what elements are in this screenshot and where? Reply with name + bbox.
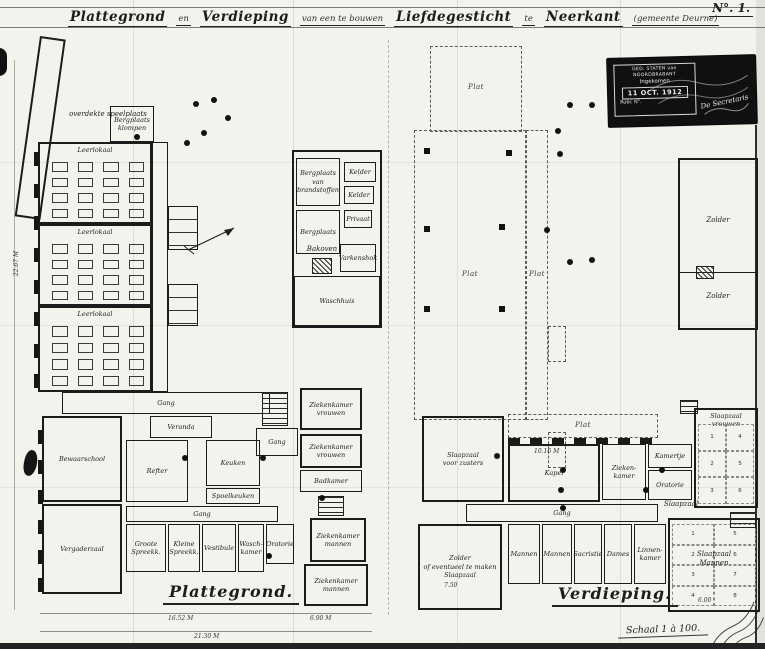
dimension-label: 10.16 M [534, 448, 559, 455]
ink-dot [555, 128, 561, 134]
dimension-label: 22.67 M [13, 251, 20, 276]
chimney-mark [506, 150, 512, 156]
chimney-mark [424, 226, 430, 232]
ink-dot [193, 101, 199, 107]
dimension-label: 16.52 M [168, 615, 193, 622]
ink-dot [567, 259, 573, 265]
chimney-mark [499, 224, 505, 230]
ink-dot [589, 102, 595, 108]
ink-dot [560, 505, 566, 511]
ink-dot [560, 467, 566, 473]
ink-dot [643, 487, 649, 493]
chimney-mark [424, 148, 430, 154]
ink-dot [211, 97, 217, 103]
dimension-label: 7.50 [444, 582, 457, 589]
dimension-label: 6.90 M [310, 615, 331, 622]
ink-dot [589, 257, 595, 263]
chimney-mark [499, 306, 505, 312]
ink-dot [201, 130, 207, 136]
ink-dot [567, 102, 573, 108]
ink-dot [544, 227, 550, 233]
ink-dot [494, 453, 500, 459]
ink-dot [184, 140, 190, 146]
marks-layer: 16.52 M6.90 M21.30 M10.16 M7.506.0022.67… [0, 0, 765, 649]
chimney-mark [424, 306, 430, 312]
ink-dot [266, 553, 272, 559]
ink-dot [659, 467, 665, 473]
drawing-sheet: Plattegrond en Verdieping van een te bou… [0, 0, 765, 649]
architect-signature [690, 588, 765, 648]
ink-dot [260, 455, 266, 461]
ink-dot [225, 115, 231, 121]
ink-dot [182, 455, 188, 461]
ink-dot [558, 487, 564, 493]
ink-dot [557, 151, 563, 157]
caption-verdieping: Verdieping. [552, 584, 678, 607]
caption-plattegrond: Plattegrond. [163, 582, 299, 605]
ink-dot [134, 134, 140, 140]
ink-dot [319, 495, 325, 501]
dimension-label: 21.30 M [194, 633, 219, 640]
